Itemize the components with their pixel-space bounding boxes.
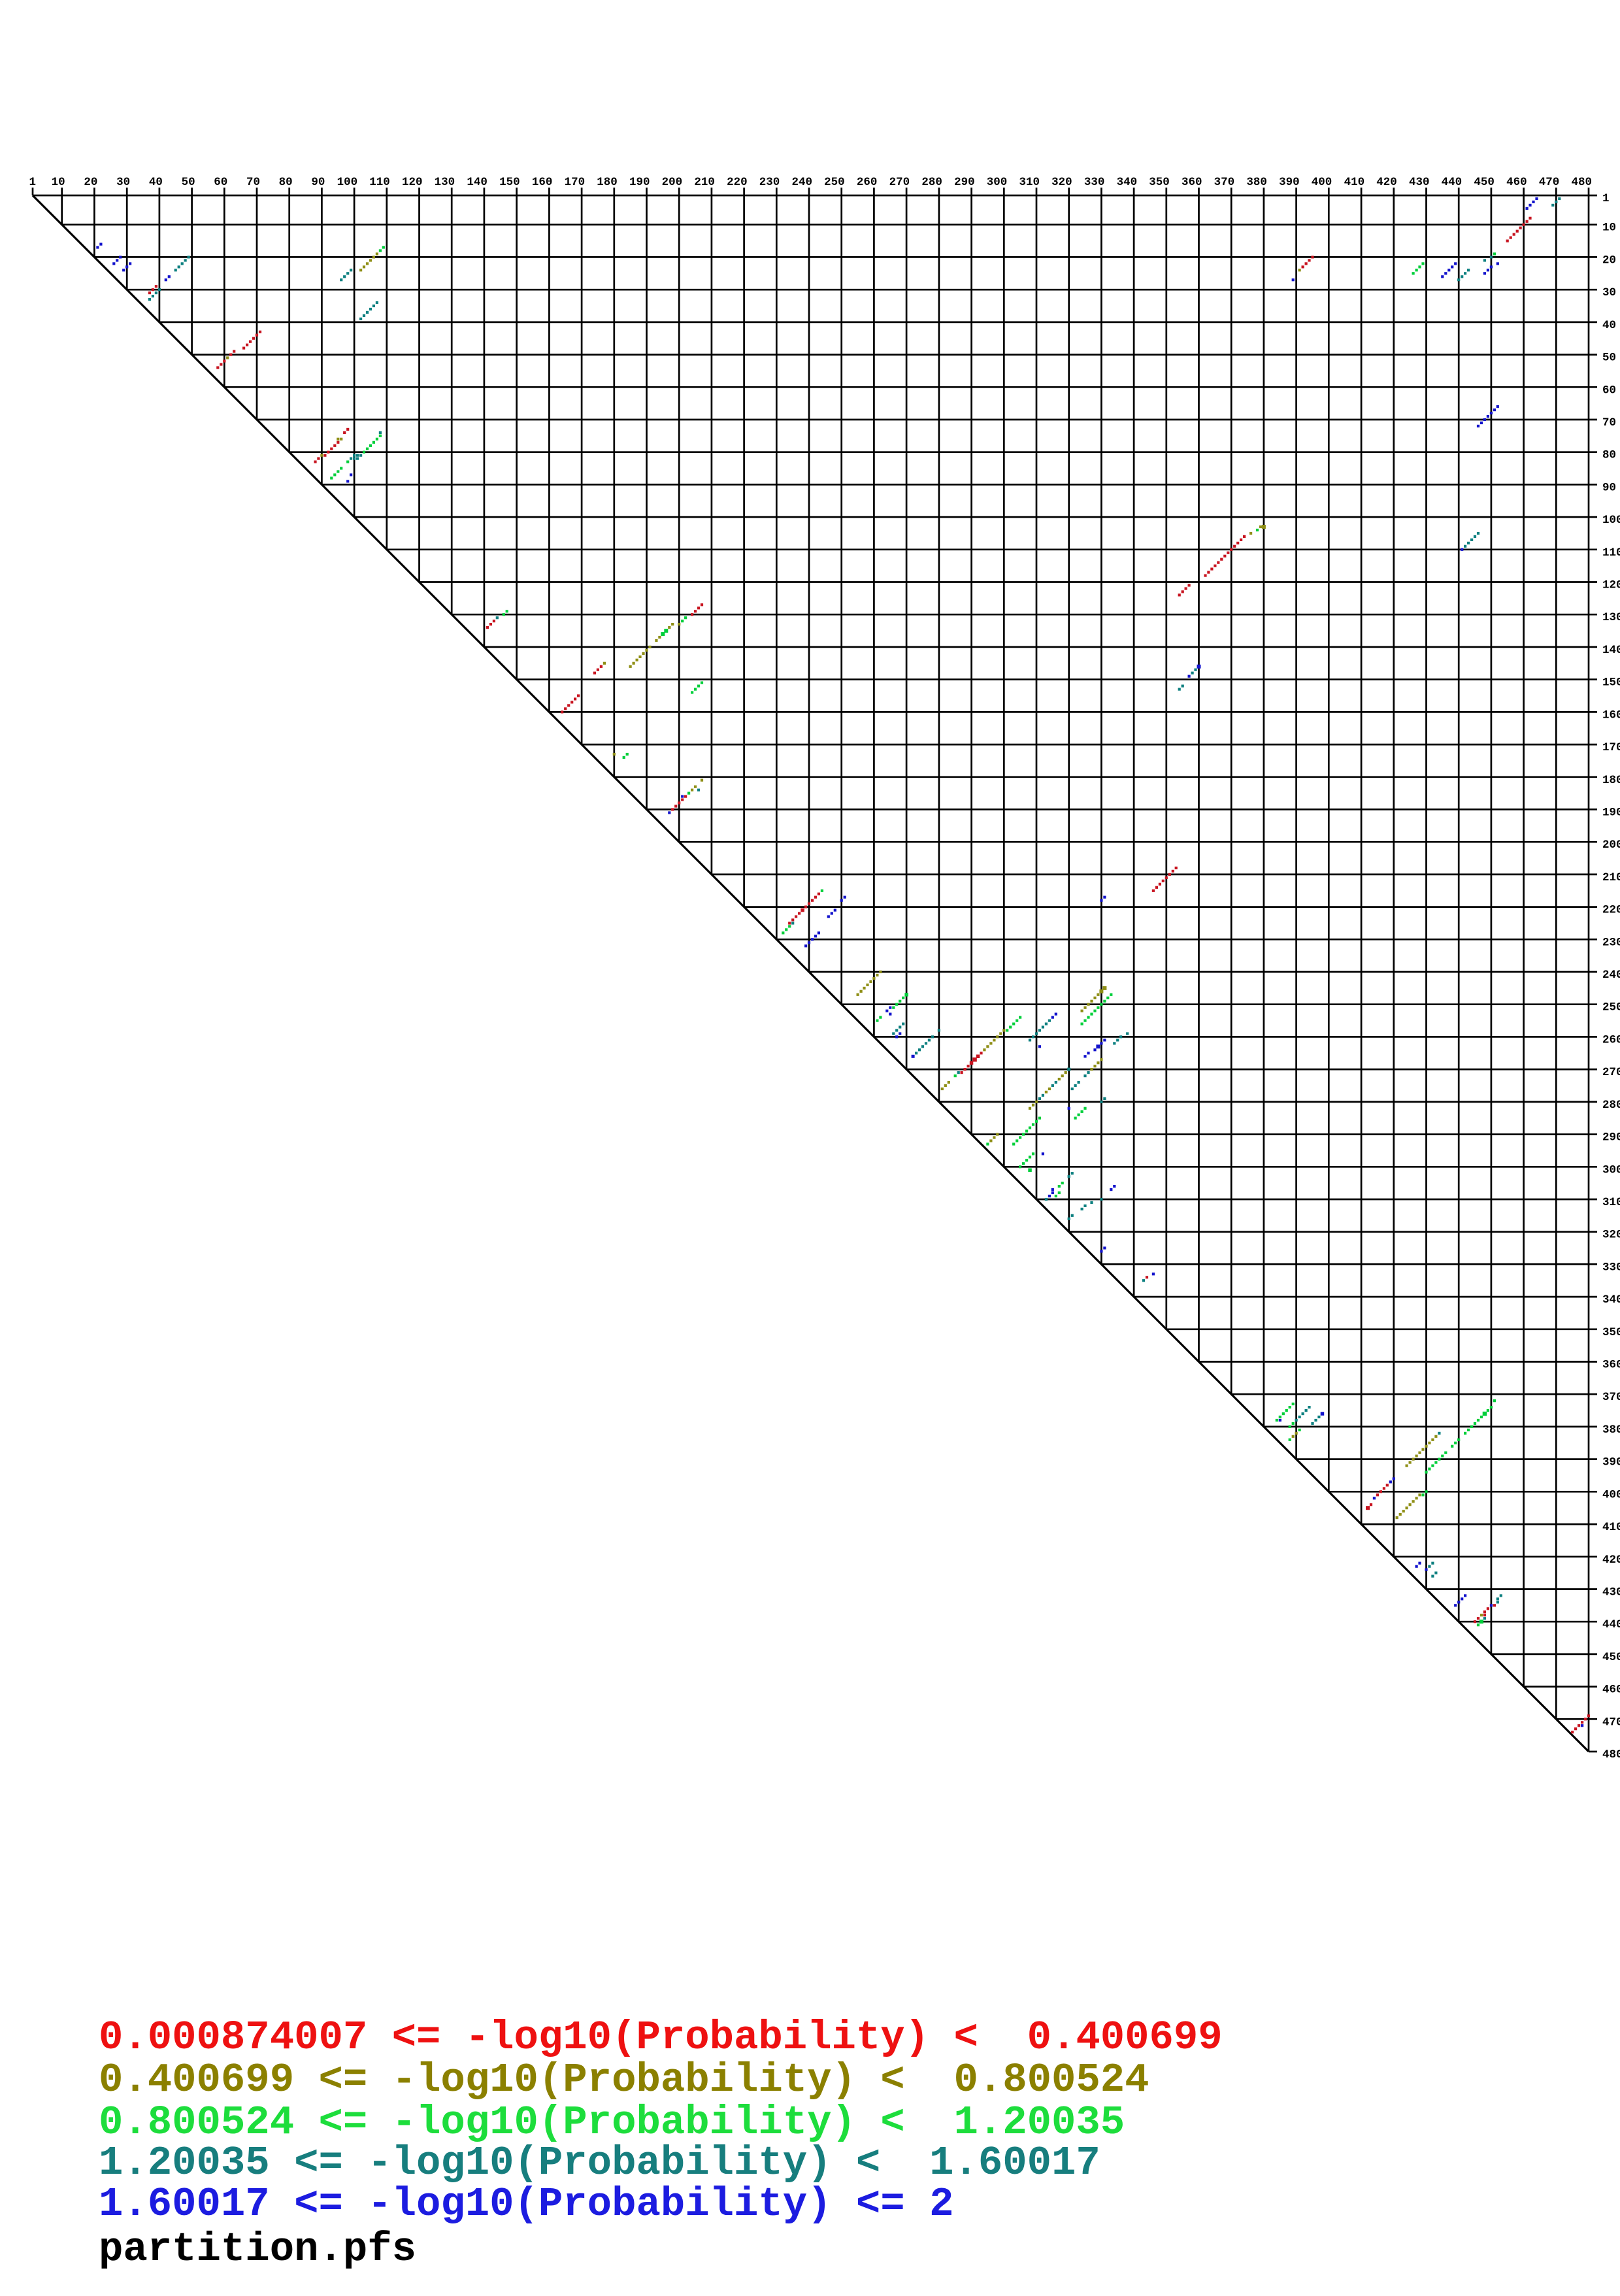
svg-text:150: 150 xyxy=(1602,676,1620,690)
svg-text:280: 280 xyxy=(1602,1099,1620,1112)
svg-text:20: 20 xyxy=(84,176,97,189)
svg-text:410: 410 xyxy=(1344,176,1365,189)
svg-text:40: 40 xyxy=(1602,319,1616,332)
svg-text:230: 230 xyxy=(1602,936,1620,949)
svg-text:470: 470 xyxy=(1539,176,1560,189)
svg-text:190: 190 xyxy=(629,176,650,189)
svg-text:220: 220 xyxy=(727,176,748,189)
svg-text:430: 430 xyxy=(1602,1586,1620,1599)
svg-text:250: 250 xyxy=(1602,1001,1620,1014)
svg-text:100: 100 xyxy=(337,176,358,189)
svg-text:10: 10 xyxy=(52,176,65,189)
svg-text:460: 460 xyxy=(1506,176,1527,189)
svg-text:370: 370 xyxy=(1602,1391,1620,1404)
svg-text:480: 480 xyxy=(1602,1748,1620,1761)
svg-text:270: 270 xyxy=(889,176,910,189)
svg-text:210: 210 xyxy=(1602,871,1620,884)
svg-text:240: 240 xyxy=(791,176,812,189)
svg-text:250: 250 xyxy=(824,176,845,189)
svg-text:420: 420 xyxy=(1602,1554,1620,1567)
svg-text:50: 50 xyxy=(1602,352,1616,365)
svg-text:410: 410 xyxy=(1602,1521,1620,1534)
svg-text:40: 40 xyxy=(149,176,163,189)
svg-text:190: 190 xyxy=(1602,807,1620,820)
svg-text:30: 30 xyxy=(116,176,130,189)
svg-text:470: 470 xyxy=(1602,1716,1620,1729)
svg-text:110: 110 xyxy=(1602,546,1620,559)
svg-text:290: 290 xyxy=(1602,1131,1620,1144)
svg-text:50: 50 xyxy=(182,176,195,189)
svg-text:80: 80 xyxy=(279,176,293,189)
svg-text:360: 360 xyxy=(1182,176,1202,189)
svg-text:390: 390 xyxy=(1279,176,1300,189)
svg-text:0.400699 <= -log10(Probability: 0.400699 <= -log10(Probability) < 0.8005… xyxy=(99,2057,1149,2103)
svg-text:60: 60 xyxy=(214,176,227,189)
svg-text:310: 310 xyxy=(1019,176,1040,189)
svg-text:480: 480 xyxy=(1571,176,1592,189)
svg-text:180: 180 xyxy=(597,176,618,189)
svg-text:10: 10 xyxy=(1602,222,1616,235)
svg-text:260: 260 xyxy=(857,176,878,189)
svg-text:150: 150 xyxy=(499,176,520,189)
svg-text:330: 330 xyxy=(1602,1261,1620,1274)
svg-text:1.60017 <= -log10(Probability): 1.60017 <= -log10(Probability) <= 2 xyxy=(99,2181,953,2227)
svg-text:140: 140 xyxy=(1602,644,1620,657)
svg-text:240: 240 xyxy=(1602,969,1620,982)
svg-text:440: 440 xyxy=(1442,176,1463,189)
svg-text:300: 300 xyxy=(1602,1163,1620,1176)
svg-text:450: 450 xyxy=(1474,176,1495,189)
svg-text:120: 120 xyxy=(402,176,423,189)
svg-text:420: 420 xyxy=(1376,176,1397,189)
svg-text:360: 360 xyxy=(1602,1359,1620,1372)
svg-text:140: 140 xyxy=(467,176,488,189)
svg-text:30: 30 xyxy=(1602,286,1616,299)
svg-text:460: 460 xyxy=(1602,1684,1620,1697)
svg-text:390: 390 xyxy=(1602,1456,1620,1469)
svg-text:450: 450 xyxy=(1602,1651,1620,1664)
svg-text:90: 90 xyxy=(311,176,325,189)
svg-text:330: 330 xyxy=(1084,176,1105,189)
svg-text:380: 380 xyxy=(1246,176,1267,189)
svg-text:110: 110 xyxy=(369,176,390,189)
svg-text:130: 130 xyxy=(1602,611,1620,624)
svg-text:70: 70 xyxy=(1602,416,1616,429)
svg-text:90: 90 xyxy=(1602,481,1616,494)
svg-text:380: 380 xyxy=(1602,1423,1620,1437)
svg-text:260: 260 xyxy=(1602,1033,1620,1046)
svg-text:0.800524 <= -log10(Probability: 0.800524 <= -log10(Probability) < 1.2003… xyxy=(99,2099,1125,2146)
svg-text:220: 220 xyxy=(1602,904,1620,917)
svg-text:320: 320 xyxy=(1602,1229,1620,1242)
svg-text:440: 440 xyxy=(1602,1618,1620,1631)
svg-text:1.20035 <= -log10(Probability): 1.20035 <= -log10(Probability) < 1.60017 xyxy=(99,2140,1100,2186)
svg-text:300: 300 xyxy=(987,176,1008,189)
svg-text:200: 200 xyxy=(662,176,683,189)
svg-text:120: 120 xyxy=(1602,579,1620,592)
svg-text:1: 1 xyxy=(29,176,36,189)
svg-text:160: 160 xyxy=(532,176,553,189)
svg-text:270: 270 xyxy=(1602,1066,1620,1079)
svg-text:290: 290 xyxy=(954,176,975,189)
svg-text:20: 20 xyxy=(1602,254,1616,267)
svg-text:310: 310 xyxy=(1602,1196,1620,1209)
svg-text:1: 1 xyxy=(1602,192,1610,205)
svg-text:320: 320 xyxy=(1051,176,1072,189)
svg-text:170: 170 xyxy=(1602,741,1620,754)
svg-text:400: 400 xyxy=(1602,1488,1620,1501)
svg-text:350: 350 xyxy=(1149,176,1170,189)
svg-text:100: 100 xyxy=(1602,514,1620,527)
svg-text:170: 170 xyxy=(565,176,586,189)
svg-text:80: 80 xyxy=(1602,449,1616,462)
svg-text:340: 340 xyxy=(1602,1293,1620,1306)
svg-text:0.000874007 <= -log10(Probabil: 0.000874007 <= -log10(Probability) < 0.4… xyxy=(99,2014,1223,2061)
svg-text:280: 280 xyxy=(921,176,942,189)
svg-text:130: 130 xyxy=(435,176,455,189)
svg-text:230: 230 xyxy=(759,176,780,189)
svg-text:200: 200 xyxy=(1602,839,1620,852)
svg-text:400: 400 xyxy=(1312,176,1332,189)
svg-text:180: 180 xyxy=(1602,774,1620,787)
svg-text:60: 60 xyxy=(1602,384,1616,397)
svg-text:partition.pfs: partition.pfs xyxy=(99,2226,416,2272)
svg-text:70: 70 xyxy=(246,176,260,189)
svg-text:210: 210 xyxy=(694,176,715,189)
svg-text:340: 340 xyxy=(1117,176,1138,189)
svg-text:370: 370 xyxy=(1214,176,1235,189)
svg-text:350: 350 xyxy=(1602,1326,1620,1339)
svg-text:430: 430 xyxy=(1409,176,1430,189)
svg-text:160: 160 xyxy=(1602,708,1620,722)
